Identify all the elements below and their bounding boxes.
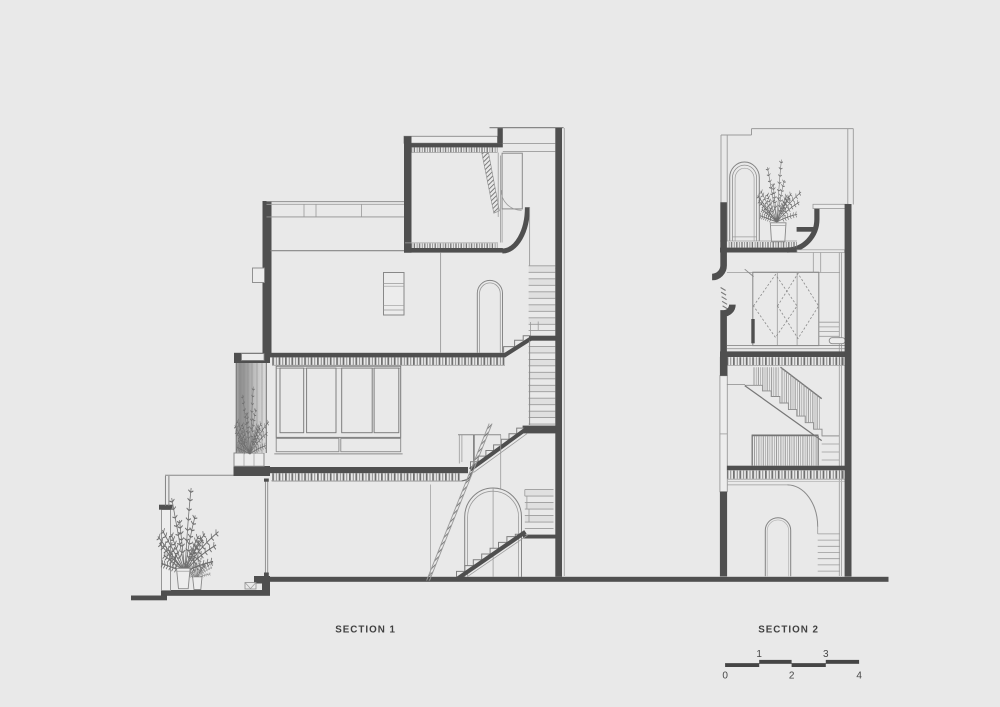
svg-text:2: 2 (789, 671, 795, 682)
svg-text:0: 0 (722, 671, 728, 682)
svg-text:SECTION 2: SECTION 2 (758, 625, 819, 636)
svg-text:3: 3 (823, 649, 829, 660)
svg-text:4: 4 (856, 671, 862, 682)
svg-text:SECTION 1: SECTION 1 (335, 625, 396, 636)
svg-text:1: 1 (756, 649, 762, 660)
